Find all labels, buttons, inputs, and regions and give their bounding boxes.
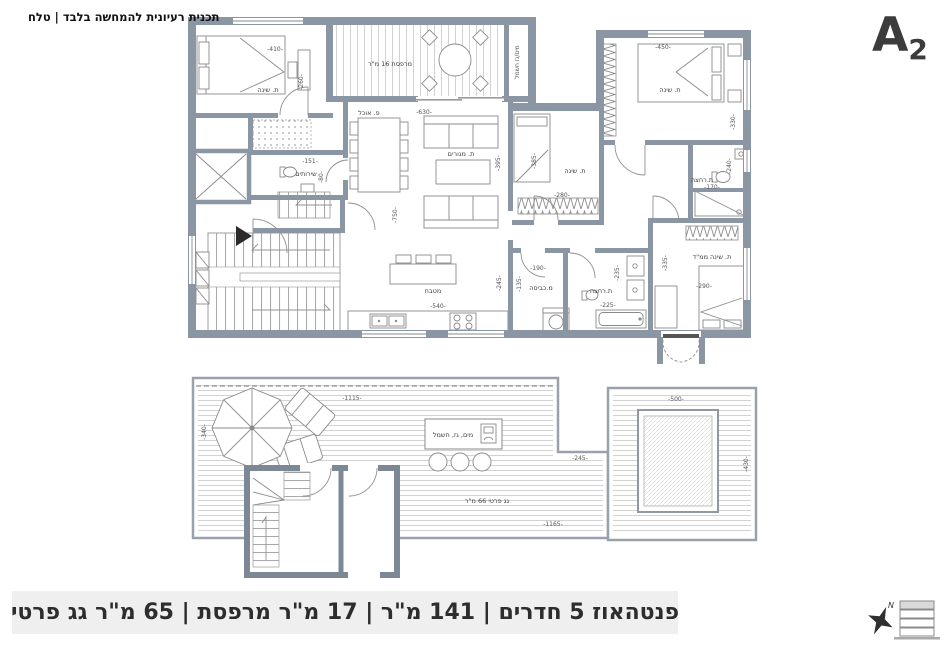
plan-code-letter: A: [872, 8, 908, 63]
floor-plan-page: ת. שינה -410- -260- מרפסת 16 מ"ר מים/גז …: [0, 0, 950, 650]
chair: [288, 62, 297, 78]
dim-master-h: -335-: [662, 255, 669, 271]
dim-bedroom2-w: -450-: [655, 44, 671, 51]
dining-table: [358, 118, 400, 192]
sink: [301, 184, 314, 192]
plan-code-number: 2: [908, 33, 927, 66]
closet: [518, 198, 598, 214]
label-kitchen: מטבח: [425, 287, 442, 295]
dim-bedroom1-h: -260-: [298, 74, 305, 90]
label-master: ת. שינה ממ"ד: [693, 253, 732, 261]
dim-bath1-w: -170-: [704, 184, 720, 191]
label-wc: שירותים: [295, 170, 317, 178]
label-bedroom2: ת. שינה: [659, 86, 680, 94]
label-bath2: ת.רחצה: [590, 287, 612, 295]
dim-bedroom3-right: -385-: [531, 153, 538, 169]
dim-bedroom2-h: -330-: [730, 114, 737, 130]
plans-drawing: ת. שינה -410- -260- מרפסת 16 מ"ר מים/גז …: [0, 0, 950, 650]
dim-wc-w: -151-: [302, 158, 318, 165]
nightstand: [728, 90, 741, 102]
dim-kitchen-h: -245-: [496, 275, 503, 291]
label-laundry: מ.כביסה: [529, 284, 553, 292]
dim-bedroom3-w: -280-: [554, 192, 570, 199]
roof-dim-bottom: -1165-: [543, 521, 563, 528]
dim-master-w: -290-: [696, 283, 712, 290]
compass-group: N: [863, 601, 940, 640]
gas-tank: [451, 453, 469, 471]
roof-utility: [425, 419, 502, 471]
sofa: [424, 116, 498, 148]
label-balcony: מרפסת 16 מ"ר: [368, 60, 412, 68]
dim-bedroom3-left: -395-: [495, 155, 502, 171]
skylight-dim-h: -430-: [743, 456, 750, 472]
dim-wc-h: -80-: [318, 171, 325, 183]
stool: [416, 255, 431, 263]
balcony-table: [439, 44, 471, 76]
roof-dim-left: -340-: [201, 424, 208, 440]
label-living: ת. מגורים: [448, 150, 475, 158]
dim-kitchen-w: -540-: [430, 303, 446, 310]
dim-bath1-h: -240-: [726, 158, 733, 174]
summary-banner: פנטהאוז 5 חדרים | 141 מ"ר | 17 מ"ר מרפסת…: [12, 591, 678, 634]
roof-plan: -1115- -340- מים, גז, חשמל -245- גג פרטי…: [193, 378, 756, 580]
label-bath1: ת.רחצה: [691, 176, 713, 184]
dim-laundry-h: -135-: [516, 276, 523, 292]
dim-living-h: -750-: [392, 207, 399, 223]
stool: [396, 255, 411, 263]
main-floor-plan: ת. שינה -410- -260- מרפסת 16 מ"ר מים/גז …: [188, 17, 751, 364]
roof-area-label: גג פרטי 66 מ"ר: [465, 497, 510, 505]
dim-laundry-w: -190-: [530, 265, 546, 272]
kitchen-island: [390, 264, 456, 284]
skylight-dim-w: -500-: [668, 396, 684, 403]
label-shaft: מים/גז חשמל: [514, 45, 521, 79]
label-bedroom3: ת. שינה: [564, 167, 585, 175]
closet: [686, 226, 738, 240]
bed: [638, 44, 724, 102]
nightstand: [728, 44, 741, 56]
gas-tank: [473, 453, 491, 471]
roof-furniture: [212, 387, 336, 472]
vanity: [627, 256, 644, 276]
roof-dim-mid: -245-: [572, 455, 588, 462]
dim-living-w: -630-: [416, 109, 432, 116]
summary-text: פנטהאוז 5 חדרים | 141 מ"ר | 17 מ"ר מרפסת…: [11, 600, 679, 625]
roof-dim-top: -1115-: [342, 395, 362, 402]
plan-code: A2: [872, 12, 928, 59]
label-bedroom1: ת. שינה: [257, 86, 278, 94]
roof-stairwell: [247, 463, 397, 580]
sofa: [424, 196, 498, 228]
coffee-table: [436, 160, 490, 184]
dresser: [655, 286, 677, 328]
gas-tank: [429, 453, 447, 471]
balcony-area: [333, 25, 504, 96]
dim-bath2-h: -235-: [614, 265, 621, 281]
vanity: [627, 280, 644, 300]
stool: [436, 255, 451, 263]
roof-utility-label: מים, גז, חשמל: [433, 431, 473, 439]
building-level-icon: [894, 601, 940, 640]
dim-bath2-w: -225-: [600, 302, 616, 309]
wardrobe-area: [253, 120, 311, 148]
label-dining: פ. אוכל: [358, 109, 379, 117]
dim-bedroom1-w: -410-: [267, 46, 283, 53]
disclaimer-text: תכנית רעיונית להמחשה בלבד | טלח: [28, 10, 220, 24]
north-label: N: [888, 601, 894, 610]
